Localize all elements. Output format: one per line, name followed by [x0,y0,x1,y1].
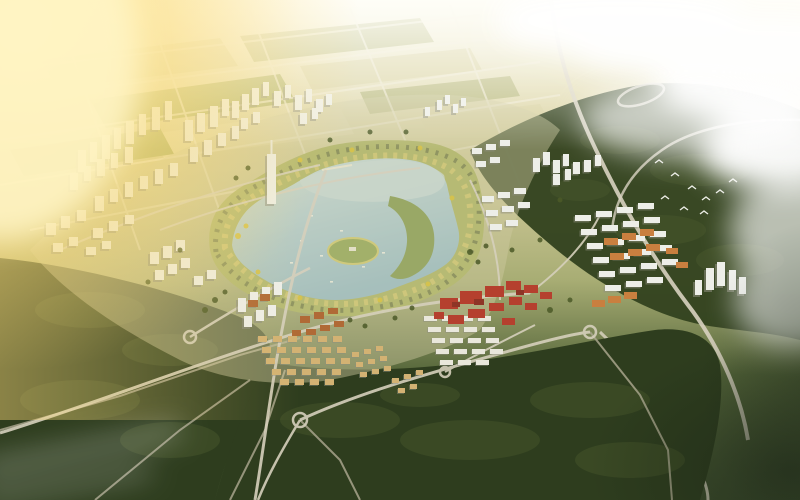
masterplan-aerial-rendering [0,0,800,500]
rendering-canvas [0,0,800,500]
